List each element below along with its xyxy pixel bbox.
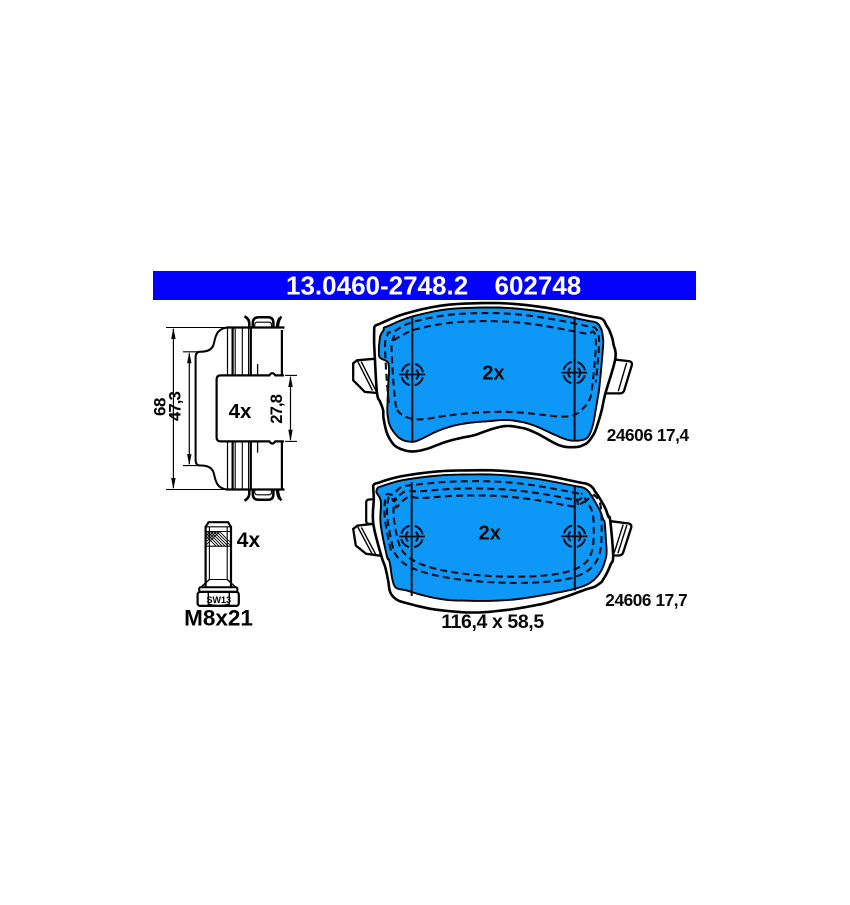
svg-text:2x: 2x [479,523,501,545]
svg-text:SW13: SW13 [207,595,232,605]
svg-text:4x: 4x [229,400,252,423]
svg-text:4x: 4x [237,529,261,552]
svg-text:602748: 602748 [495,271,582,301]
svg-text:24606 17,4: 24606 17,4 [607,425,690,445]
svg-text:24606 17,7: 24606 17,7 [605,590,687,610]
svg-text:2x: 2x [482,362,504,384]
svg-text:13.0460-2748.2: 13.0460-2748.2 [286,271,468,301]
svg-text:116,4 x 58,5: 116,4 x 58,5 [441,611,544,633]
svg-text:47,3: 47,3 [167,391,185,421]
svg-text:M8x21: M8x21 [184,606,253,631]
svg-text:27,8: 27,8 [268,394,286,424]
